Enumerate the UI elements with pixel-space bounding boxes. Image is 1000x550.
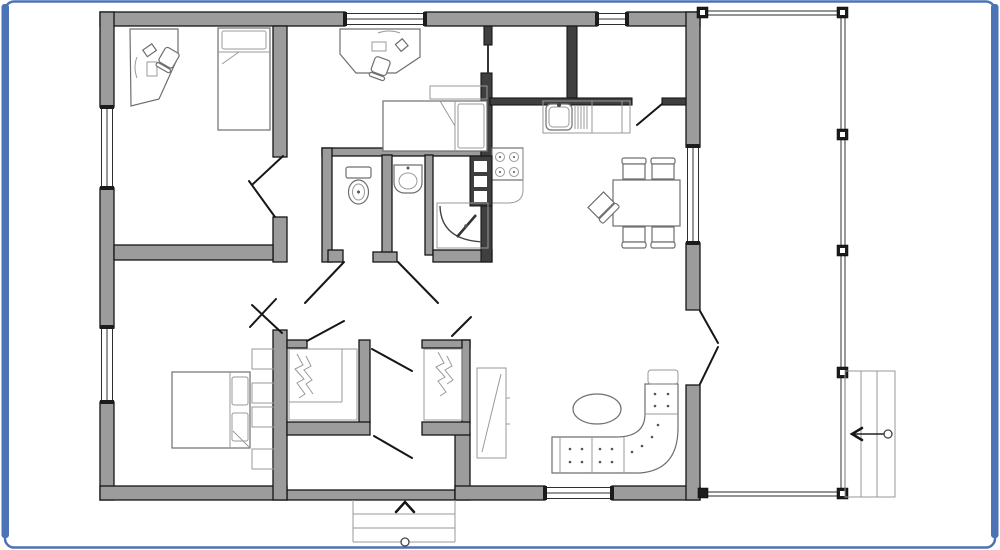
wall-left-b bbox=[100, 188, 114, 328]
wall-right-c bbox=[686, 385, 700, 500]
wall-wc-basin-divider bbox=[382, 155, 392, 255]
stair-start-marker bbox=[884, 430, 892, 438]
kitchen-drainboard bbox=[575, 105, 587, 129]
door-passage-top bbox=[372, 349, 412, 371]
frame-left-bar bbox=[2, 4, 10, 538]
wall-top-b bbox=[425, 12, 597, 26]
door-office-a bbox=[249, 181, 275, 217]
entry-steps bbox=[353, 500, 455, 546]
window-top-2 bbox=[595, 12, 629, 26]
window-right-dining bbox=[686, 144, 700, 245]
wall-closet1-right bbox=[359, 340, 370, 423]
wall-basin-shower-divider bbox=[425, 155, 433, 255]
kitchen-sink bbox=[546, 103, 572, 130]
frame-right-bar bbox=[991, 4, 999, 538]
door-entry bbox=[374, 436, 412, 458]
door-french-lower bbox=[700, 347, 718, 384]
wall-right-b bbox=[686, 243, 700, 310]
floor-plan-canvas bbox=[0, 0, 1000, 550]
hanger-rail-mark bbox=[295, 354, 305, 398]
wall-spine-mid bbox=[273, 217, 287, 262]
bathroom bbox=[346, 165, 488, 248]
wall-right-a bbox=[686, 12, 700, 147]
window-top-1 bbox=[343, 12, 427, 26]
door-washroom bbox=[398, 262, 438, 303]
office-room bbox=[130, 28, 270, 130]
washbasin bbox=[394, 165, 422, 193]
wall-midroom-right bbox=[567, 26, 577, 98]
sofa-headrest bbox=[648, 370, 678, 384]
hanger-rail-mark bbox=[445, 356, 453, 384]
door-closet1 bbox=[307, 321, 344, 341]
kitchen bbox=[470, 101, 630, 206]
hanger-rail-mark bbox=[304, 356, 313, 394]
dining-set bbox=[587, 158, 680, 248]
wall-entry-top-left bbox=[287, 422, 370, 435]
closet-right bbox=[424, 349, 462, 420]
door-office-b bbox=[253, 156, 283, 184]
deck-stairs bbox=[845, 371, 895, 497]
wall-top-a bbox=[100, 12, 345, 26]
middle-shelf bbox=[430, 86, 487, 99]
office-single-bed bbox=[218, 28, 270, 130]
wall-spine-top bbox=[273, 26, 287, 157]
appliance-tower bbox=[470, 156, 492, 206]
window-bottom-living bbox=[543, 486, 614, 500]
wall-left-a bbox=[100, 12, 114, 107]
toilet bbox=[346, 167, 371, 204]
hanger-rail-mark bbox=[436, 352, 446, 396]
dining-table bbox=[613, 180, 680, 226]
porch-deck bbox=[697, 7, 895, 499]
wall-dining-stub bbox=[662, 98, 686, 105]
wardrobe-shelves bbox=[252, 349, 274, 469]
wall-closet1-top bbox=[287, 340, 307, 348]
wall-spine-low bbox=[273, 330, 287, 500]
door-wc bbox=[305, 262, 344, 303]
wall-room-divider-left bbox=[114, 245, 273, 260]
living-room bbox=[552, 370, 678, 473]
dining-chair bbox=[651, 227, 675, 248]
hall-cabinet bbox=[477, 368, 510, 458]
cabinet-mirror-line bbox=[482, 374, 501, 452]
wall-bottom-living-a bbox=[455, 486, 545, 500]
coffee-table bbox=[573, 394, 621, 424]
wall-bath-jamb-b bbox=[373, 252, 397, 262]
closets bbox=[289, 349, 462, 420]
entry-direction-arrow bbox=[396, 502, 414, 512]
dining-chair bbox=[622, 227, 646, 248]
closet-left bbox=[289, 349, 357, 420]
wall-nook-stub bbox=[484, 26, 492, 45]
middle-single-bed bbox=[383, 101, 487, 151]
floor-plan-drawing bbox=[0, 0, 1000, 550]
door-french-upper bbox=[700, 311, 718, 343]
wall-nook-thin-line bbox=[487, 45, 489, 73]
door-hall-living bbox=[452, 317, 471, 336]
middle-room bbox=[340, 29, 487, 151]
wall-closet2-right bbox=[462, 340, 470, 423]
wall-wc-left bbox=[322, 148, 332, 262]
wall-bath-jamb-a bbox=[328, 250, 343, 262]
wall-bottom-bedroom bbox=[100, 486, 287, 500]
master-bedroom bbox=[172, 349, 274, 469]
window-left-bedroom bbox=[100, 325, 114, 404]
window-left-office bbox=[100, 105, 114, 190]
porch-posts bbox=[697, 7, 848, 499]
corner-sofa bbox=[552, 370, 678, 473]
dining-chair bbox=[622, 158, 646, 179]
wall-entry-top-right bbox=[422, 422, 470, 435]
entry-start-marker bbox=[401, 538, 409, 546]
dining-chair bbox=[651, 158, 675, 179]
shower-cabin bbox=[437, 203, 488, 248]
wall-left-c bbox=[100, 402, 114, 500]
wall-bottom-entry bbox=[287, 490, 455, 500]
door-dining-top bbox=[637, 104, 662, 125]
double-bed bbox=[172, 372, 250, 448]
kitchen-cooktop bbox=[492, 148, 523, 180]
shower-glass-curve bbox=[440, 206, 485, 242]
